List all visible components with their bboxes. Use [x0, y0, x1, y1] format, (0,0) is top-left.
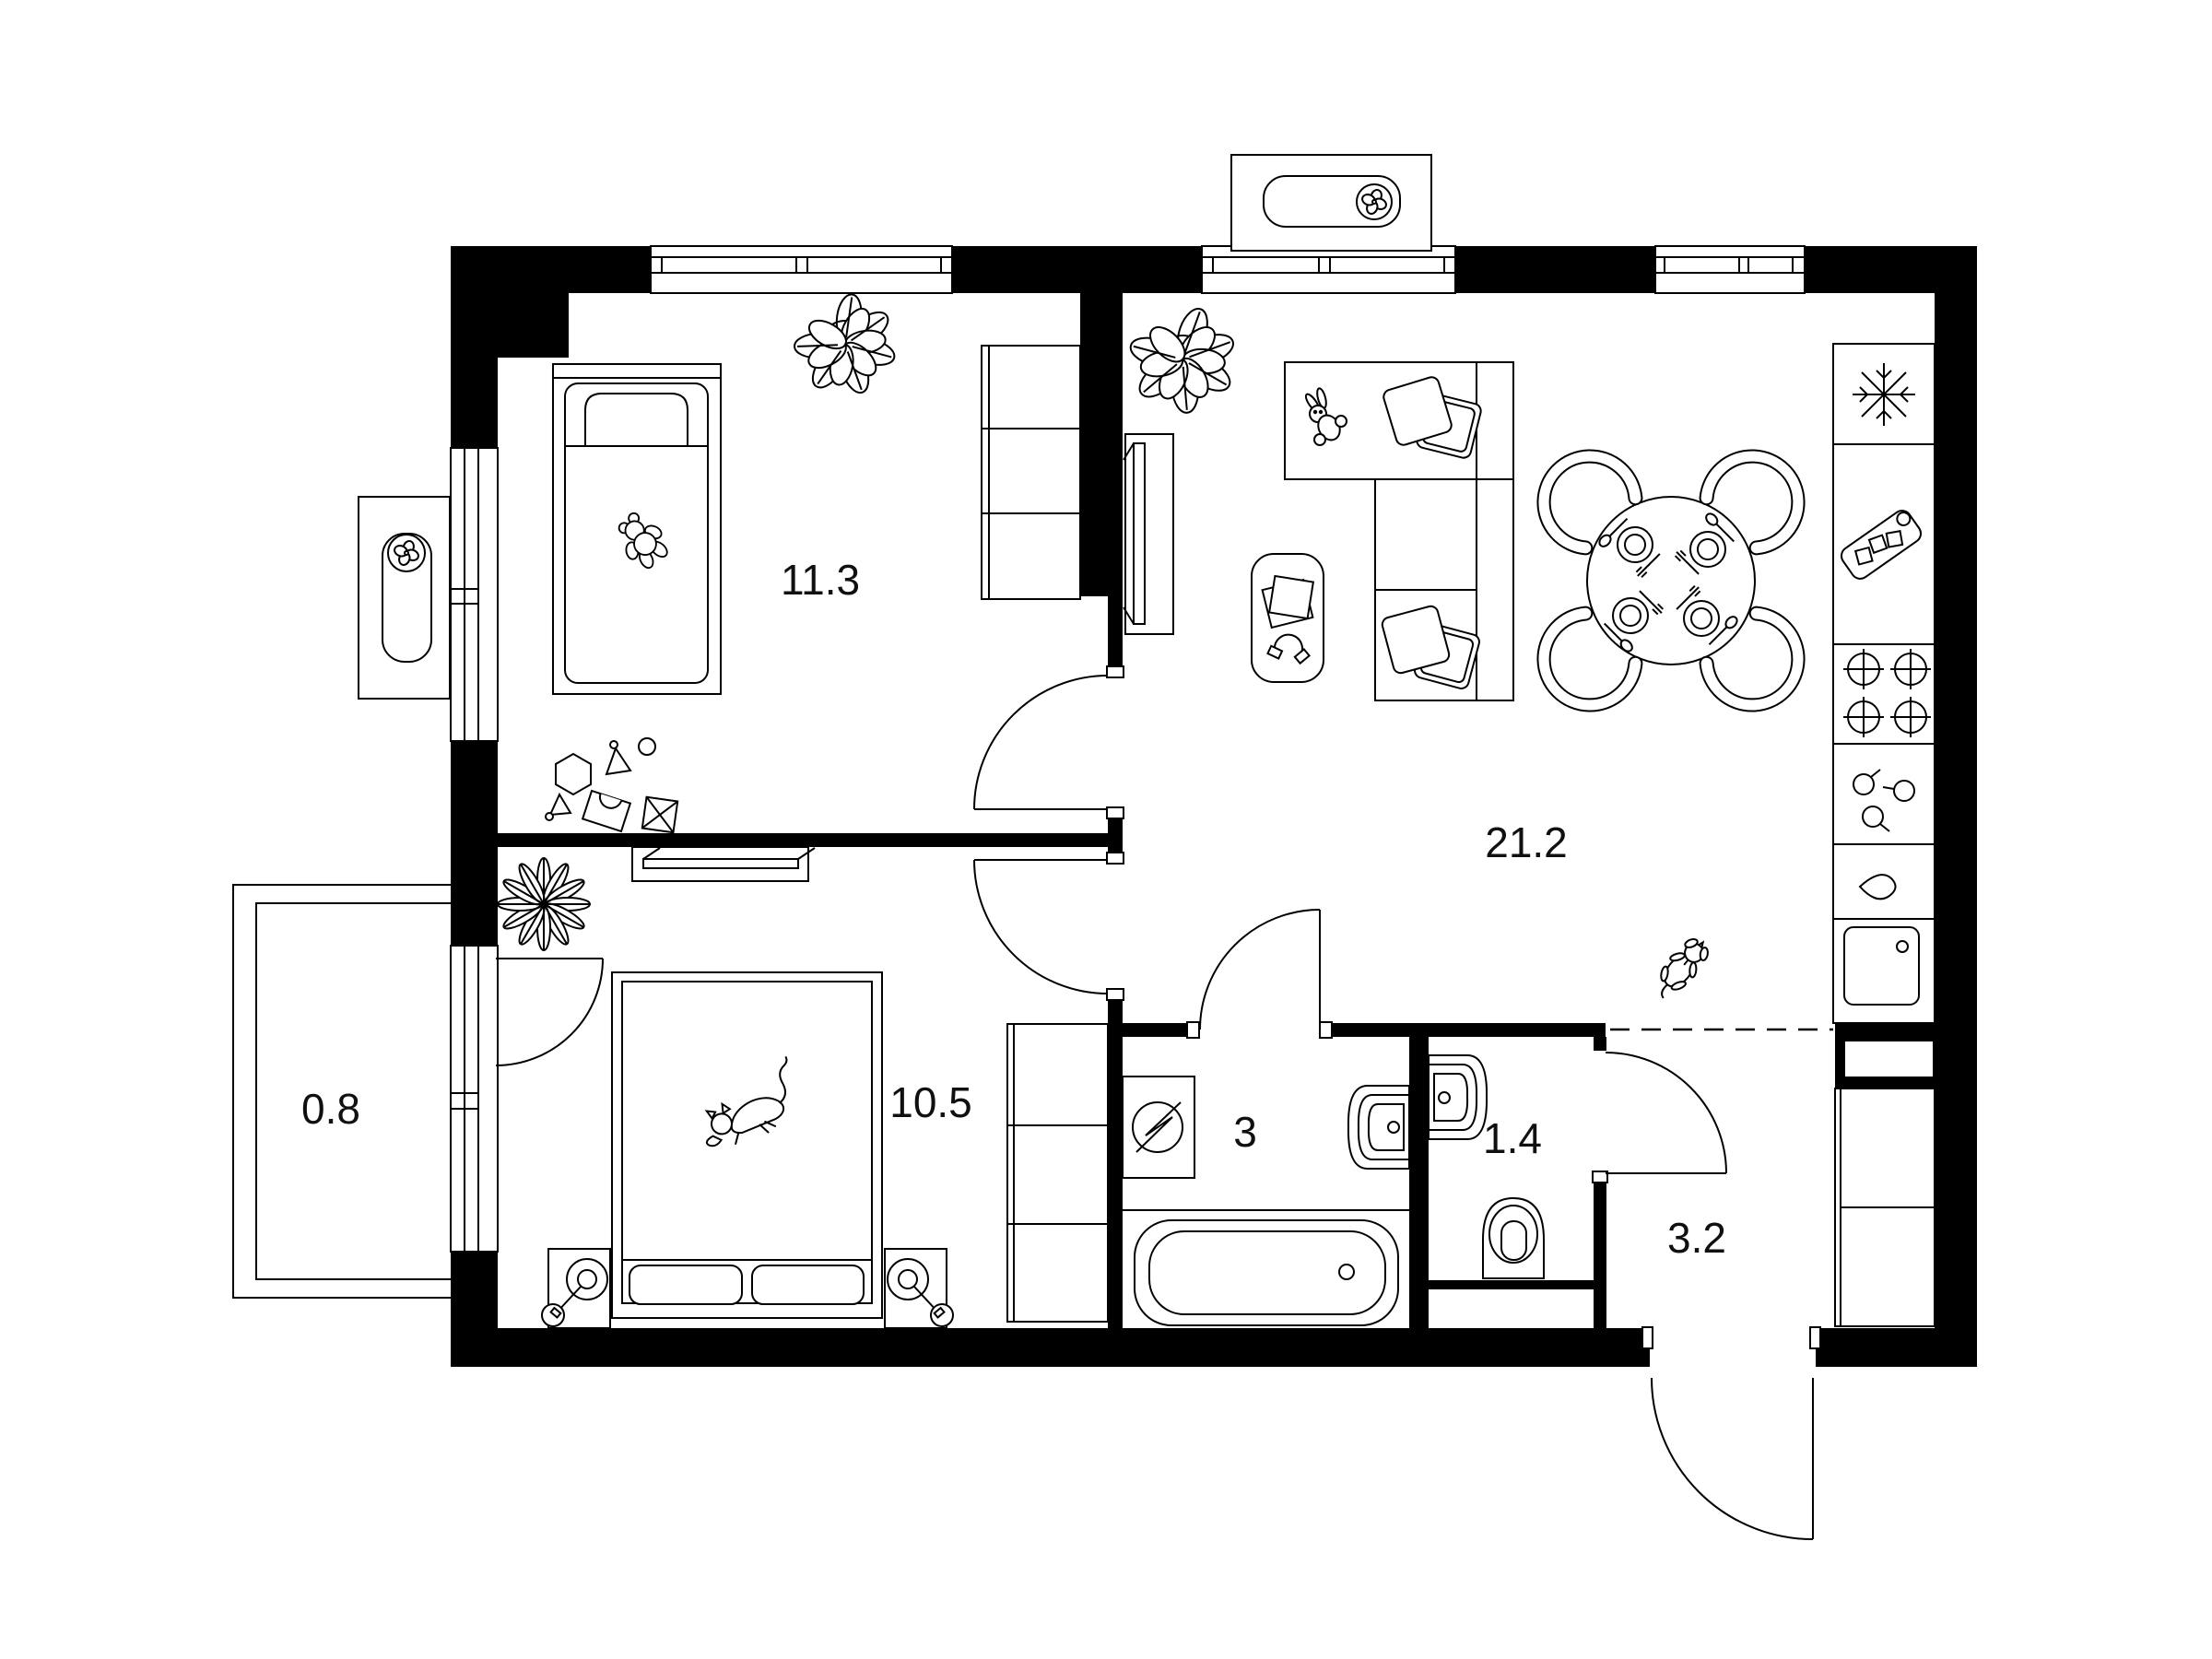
svg-text:11.3: 11.3 [781, 556, 860, 604]
svg-text:1.4: 1.4 [1483, 1114, 1542, 1162]
svg-text:3: 3 [1233, 1108, 1257, 1156]
svg-text:10.5: 10.5 [889, 1078, 972, 1126]
svg-text:3.2: 3.2 [1667, 1214, 1726, 1262]
svg-text:21.2: 21.2 [1485, 818, 1568, 866]
svg-text:0.8: 0.8 [301, 1085, 360, 1133]
